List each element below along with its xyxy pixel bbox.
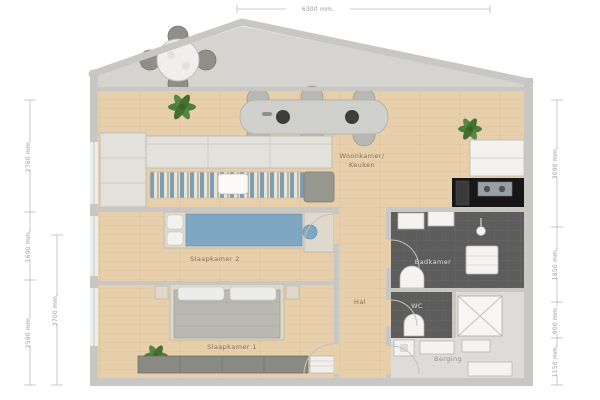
nightstand (155, 286, 168, 299)
island-top (240, 100, 388, 134)
faucet-icon (262, 112, 272, 116)
dimension-top: 6300 mm. (237, 5, 490, 13)
door-opening (386, 240, 391, 268)
dimension-right-4: 1150 mm. (552, 345, 559, 377)
dimension-right-1: 3090 mm. (552, 147, 559, 179)
dryer-icon (462, 340, 490, 352)
wardrobe (138, 356, 308, 373)
burner-icon (345, 110, 359, 124)
door-opening (334, 214, 339, 244)
burner-icon (484, 186, 490, 192)
plate-icon (167, 51, 175, 59)
bathroom-label: Badkamer (415, 258, 451, 266)
dimension-left-2: 1690 mm. (25, 230, 32, 262)
window-icon (90, 288, 98, 346)
wc-label: WC (411, 302, 423, 310)
pillow-icon (178, 287, 224, 300)
armchair (304, 172, 334, 202)
pillow-icon (167, 215, 183, 229)
dimension-right-3: 900 mm. (552, 306, 559, 334)
wall-bottom (90, 378, 533, 386)
pillow-icon (167, 232, 183, 245)
wall-living-south-left (97, 207, 334, 212)
plate-icon (182, 62, 190, 70)
wall-bathroom-south (391, 288, 524, 292)
door-opening (334, 344, 339, 374)
washer-icon (420, 341, 454, 354)
shower-head-icon (477, 227, 486, 236)
bath-shelf (398, 213, 424, 229)
hall-label: Hal (354, 298, 366, 306)
door-opening (386, 346, 391, 374)
kitchen-appliance-icon (456, 181, 469, 205)
dimension-left-inner-value: 3700 mm. (52, 294, 59, 326)
nightstand (286, 286, 299, 299)
pillow-icon (230, 287, 276, 300)
window-icon (90, 142, 98, 204)
sideboard (100, 133, 146, 207)
bath-sink-unit (466, 246, 498, 274)
wall-bedrooms (97, 281, 334, 285)
door-opening (386, 300, 391, 326)
dimension-left-inner: 3700 mm. (51, 235, 63, 385)
window-icon (90, 216, 98, 276)
dimension-left-1: 2760 mm. (25, 140, 32, 172)
shelf-unit (310, 356, 334, 373)
shower-tray-icon (400, 266, 424, 288)
dimension-right: 3090 mm. 1850 mm. 900 mm. 1150 mm. (551, 100, 563, 385)
dimension-left-3: 2590 mm. (25, 316, 32, 348)
coffee-table (218, 174, 248, 194)
dimension-top-value: 6300 mm. (302, 6, 334, 13)
wall-right (524, 78, 533, 386)
bedroom2-label: Slaapkamer 2 (190, 255, 240, 263)
living-room-label-line1: Woonkamer/ (340, 152, 385, 160)
dimension-right-2: 1850 mm. (552, 248, 559, 280)
toilet-icon (404, 314, 424, 336)
sink-icon (276, 110, 290, 124)
storage-label: Berging (434, 355, 462, 363)
bed2-mattress (186, 214, 302, 246)
bath-shelf (428, 211, 454, 226)
living-room-label-line2: Keuken (349, 161, 375, 169)
bedroom1-label: Slaapkamer 1 (207, 343, 257, 351)
dimension-left-outer: 2760 mm. 1690 mm. 2590 mm. (24, 100, 36, 385)
doormat-icon (468, 362, 512, 376)
wall-wc-storage (452, 292, 456, 338)
sofa (146, 136, 332, 168)
cooktop-icon (478, 182, 512, 196)
burner-icon (499, 186, 505, 192)
wall-terrace (97, 87, 524, 91)
wall-living-south-right (391, 207, 524, 212)
floor-plan-drawing: Woonkamer/ Keuken Slaapkamer 2 Slaapkame… (0, 0, 600, 400)
floor-plan-canvas: Woonkamer/ Keuken Slaapkamer 2 Slaapkame… (0, 0, 600, 400)
